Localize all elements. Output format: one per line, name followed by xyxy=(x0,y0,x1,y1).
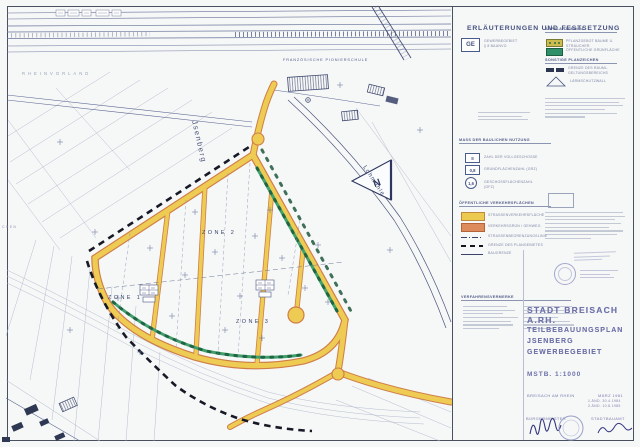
label-edge-fragment: CHEN xyxy=(2,225,17,229)
mayor-signature xyxy=(530,418,561,434)
use-section-header: MASS DER BAULICHEN NUTZUNG xyxy=(459,138,551,144)
titleblock-plan-area: JSENBERG xyxy=(527,338,574,345)
use-label-2: GESCHOSSFLÄCHENZAHL (GFZ) xyxy=(484,180,544,190)
label-zone3: ZONE 3 xyxy=(236,319,270,325)
titleblock-date: MÄRZ 1981 xyxy=(598,393,623,398)
misc-section-header: SONSTIGE PLANZEICHEN xyxy=(545,58,617,64)
official-seal-inner xyxy=(563,420,579,436)
triangle-label: LÄRMSCHUTZWALL xyxy=(570,79,630,84)
titleblock-place: BREISACH AM RHEIN xyxy=(527,393,575,398)
navy-swatch-b xyxy=(556,68,564,72)
titleblock-city: STADT BREISACH A.RH. xyxy=(527,305,640,325)
dashdot-line-label: STRASSENBEGRENZUNGSLINIE xyxy=(488,234,548,239)
titleblock-scale: MSTB. 1:1000 xyxy=(527,371,581,378)
titleblock-plan-type: TEILBEBAUUNGSPLAN xyxy=(527,327,623,334)
traffic-section-header: ÖFFENTLICHE VERKEHRSFLÄCHEN xyxy=(459,201,551,207)
use-label-1: GRUNDFLÄCHENZAHL (GRZ) xyxy=(484,167,544,172)
yellow-swatch xyxy=(461,212,485,221)
use-label-0: ZAHL DER VOLLGESCHOSSE xyxy=(484,155,544,160)
dashed-line-sample xyxy=(461,245,483,247)
teal-swatch-label: ÖFFENTLICHE GRÜNFLÄCHE xyxy=(566,48,628,53)
procedure-header: VERFAHRENSVERMERKE xyxy=(461,295,571,301)
titleblock-amendment1: 1.ÄND. 30.4.1984 xyxy=(588,399,621,403)
illegible-text-block xyxy=(545,212,625,242)
planned-roads xyxy=(95,84,451,427)
label-zone1: ZONE 1 xyxy=(108,295,142,301)
ge-label-line2: § 8 BAUNVO xyxy=(484,44,532,49)
use-symbol-1: 0,8 xyxy=(465,165,480,175)
use-symbol-2: 1,6 xyxy=(465,177,477,189)
navy-swatch-a xyxy=(546,68,554,72)
noise-wall-triangle xyxy=(546,76,566,87)
solid-line-label: BAUGRENZE xyxy=(488,251,548,256)
teal-swatch xyxy=(546,48,563,56)
label-zone2: ZONE 2 xyxy=(202,230,236,236)
approval-stamp-text xyxy=(574,251,616,264)
illegible-text-block xyxy=(478,112,530,123)
planting-section-header: ANPFLANZUNGEN xyxy=(545,27,617,33)
titleblock-plan-use: GEWERBEGEBIET xyxy=(527,349,602,356)
plan-map: N RHEINVORLAND FRANZÖSISCHE PIONIERSCHUL… xyxy=(0,0,452,447)
dashed-line-label: GRENZE DES PLANGEBIETES xyxy=(488,243,548,248)
existing-roads xyxy=(7,90,451,328)
dashdot-line-sample xyxy=(461,237,483,238)
orange-swatch-label: VERKEHRSGRÜN / GEHWEG xyxy=(488,224,548,229)
label-jsenberg: Jsenberg xyxy=(190,119,209,164)
illegible-text-block xyxy=(463,306,518,332)
label-school: FRANZÖSISCHE PIONIERSCHULE xyxy=(283,58,368,62)
railway-markers xyxy=(56,10,121,16)
office-signature xyxy=(598,423,632,433)
approval-stamp-text2 xyxy=(580,270,618,281)
approval-seal-inner xyxy=(558,267,572,281)
yellow-swatch-label: STRASSENVERKEHRSFLÄCHE xyxy=(488,213,548,218)
olive-swatch xyxy=(546,39,563,47)
navy-pair-label: GRENZE DES RÄUML. GELTUNGSBEREICHS xyxy=(568,66,630,76)
plan-sheet: N RHEINVORLAND FRANZÖSISCHE PIONIERSCHUL… xyxy=(0,0,640,447)
legend-sketch-box xyxy=(548,193,574,208)
panel-divider xyxy=(452,6,453,440)
solid-line-sample xyxy=(461,254,483,255)
orange-swatch xyxy=(461,223,485,232)
official-seal xyxy=(559,416,583,440)
ge-label: GEWERBEGEBIET § 8 BAUNVO xyxy=(484,39,532,49)
signatures xyxy=(524,404,636,444)
use-symbol-0: II xyxy=(465,153,480,163)
label-rheinvorland: RHEINVORLAND xyxy=(22,71,91,76)
ge-symbol: GE xyxy=(461,38,480,52)
illegible-text-block xyxy=(545,98,625,120)
